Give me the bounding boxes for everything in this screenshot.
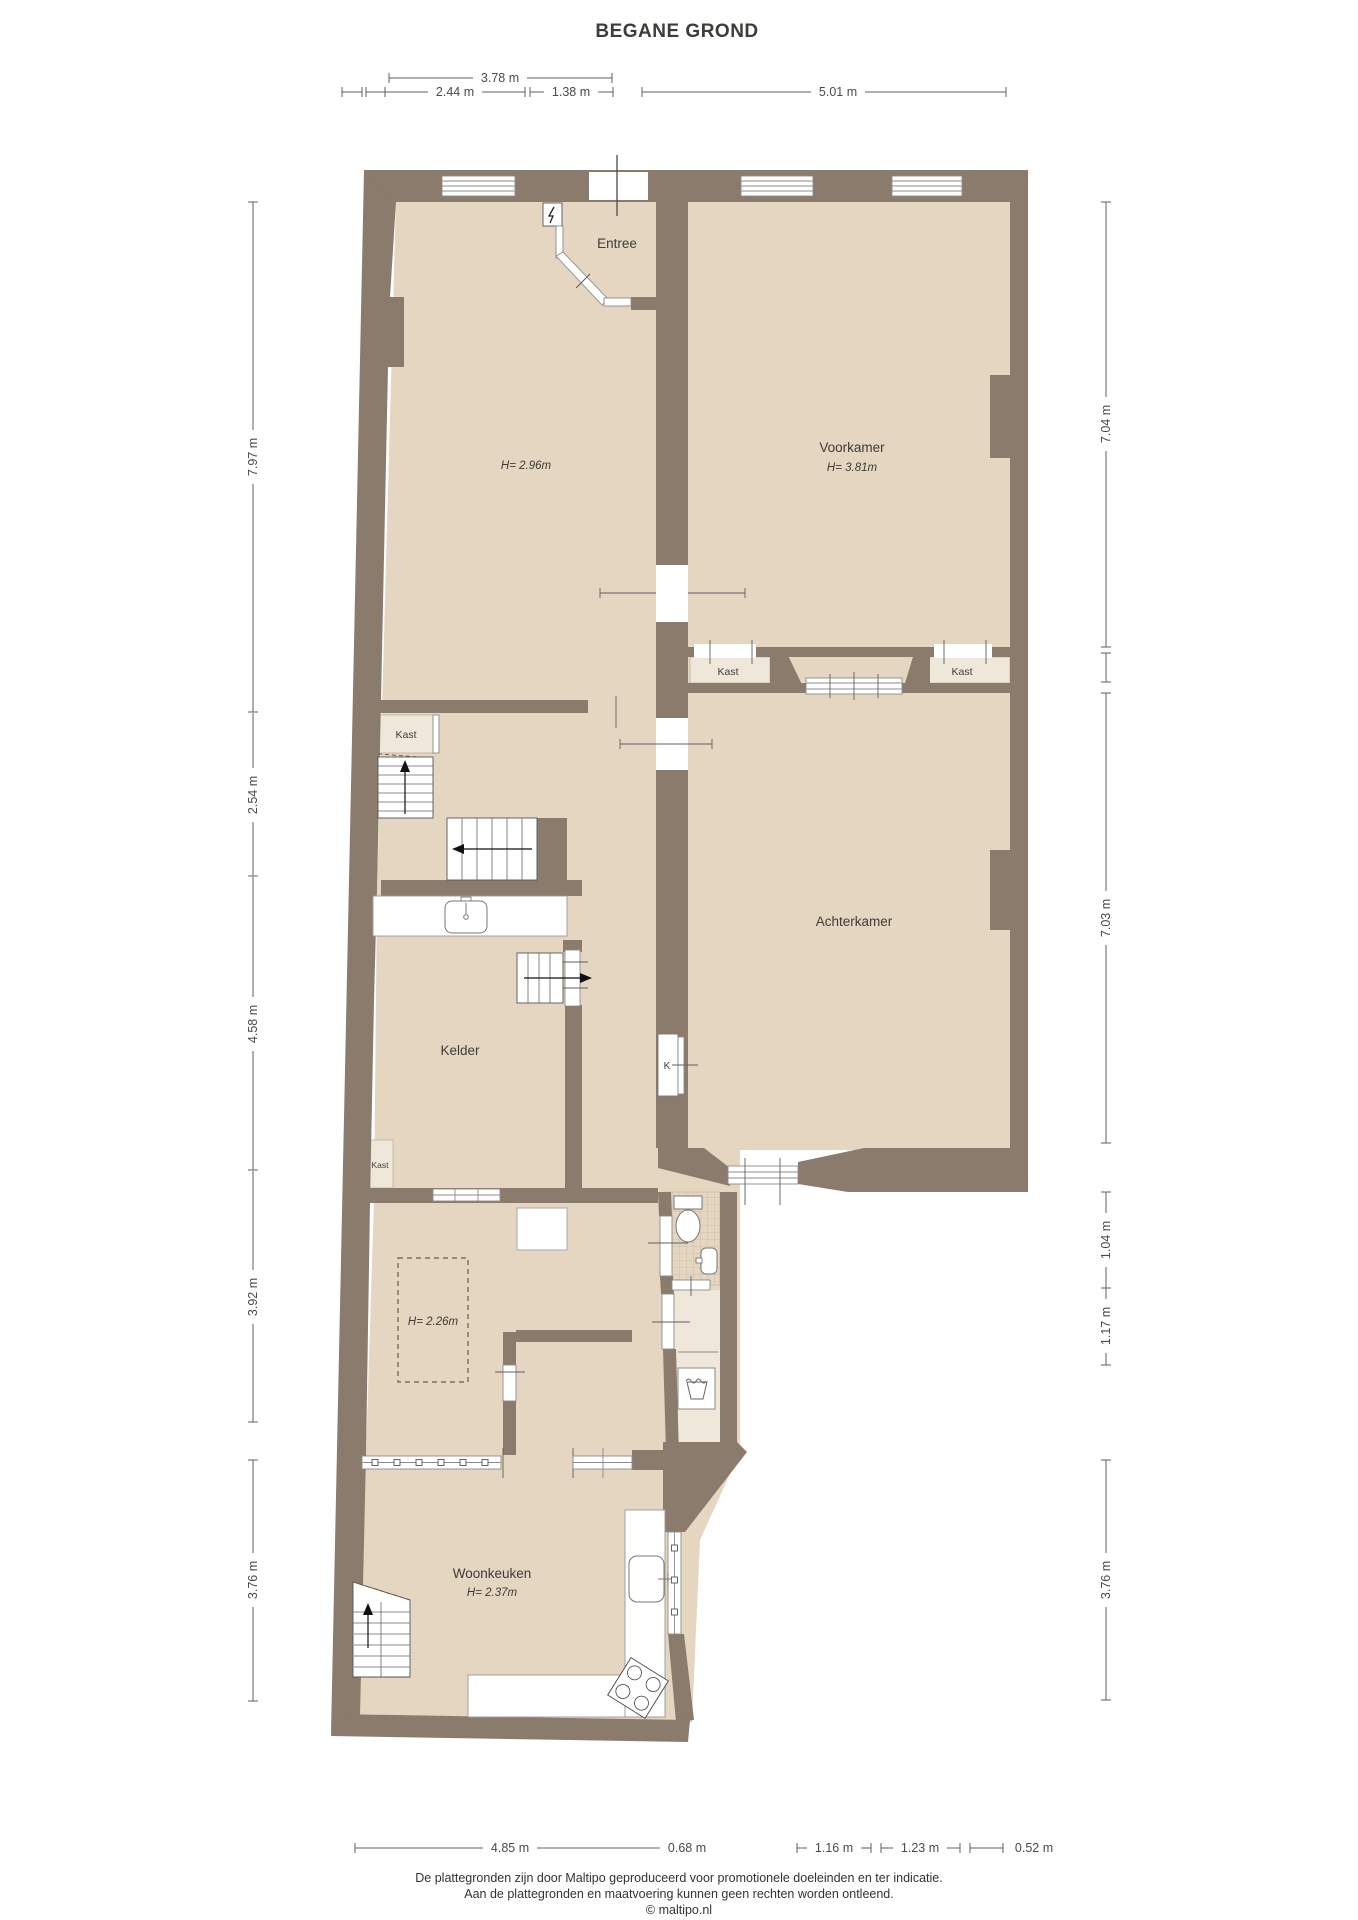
label-kast-row-left: Kast <box>717 666 738 678</box>
window-shaft-upper <box>660 1216 672 1276</box>
dim-top-501: 5.01 m <box>819 85 857 99</box>
dim-right-104: 1.04 m <box>1099 1221 1113 1259</box>
dim-bottom-068: 0.68 m <box>668 1841 706 1855</box>
wall-stair-block <box>537 818 567 880</box>
front-door-opening <box>589 172 648 200</box>
wall-shaft-left-a <box>658 1192 672 1216</box>
floorplan-page: BEGANE GROND 3.78 m 2.44 m 1.38 m 5.01 m… <box>0 0 1358 1920</box>
dim-bottom-123: 1.23 m <box>901 1841 939 1855</box>
label-kast-kelder: Kast <box>371 1160 389 1170</box>
dim-bottom-116: 1.16 m <box>815 1841 853 1855</box>
footer-line-2: Aan de plattegronden en maatvoering kunn… <box>464 1887 894 1901</box>
fusebox <box>543 203 562 226</box>
kast-left-door <box>694 644 756 658</box>
k-box-door <box>678 1037 684 1094</box>
dim-top-138: 1.38 m <box>552 85 590 99</box>
dim-top-244: 2.44 m <box>436 85 474 99</box>
label-k-box: K <box>664 1061 671 1072</box>
label-voorkamer-height: H= 3.81m <box>827 462 878 474</box>
label-achterkamer: Achterkamer <box>816 914 893 929</box>
wall-hall-band <box>381 880 582 896</box>
wall-niche-voorkamer <box>990 375 1010 458</box>
toilet-sink <box>701 1248 717 1274</box>
wall-middle <box>656 202 688 1148</box>
label-entree: Entree <box>597 236 637 251</box>
dim-right-376: 3.76 m <box>1099 1561 1113 1599</box>
dim-bottom-052: 0.52 m <box>1015 1841 1053 1855</box>
kast-right-door <box>934 644 992 658</box>
wall-right <box>1010 170 1028 1192</box>
page-title: BEGANE GROND <box>595 21 758 42</box>
dim-top-378: 3.78 m <box>481 71 519 85</box>
footer-line-3: © maltipo.nl <box>646 1903 712 1917</box>
dim-right-703: 7.03 m <box>1099 899 1113 937</box>
dim-bottom-485: 4.85 m <box>491 1841 529 1855</box>
dim-left-376: 3.76 m <box>246 1561 260 1599</box>
wall-kelder-bottom <box>367 1188 658 1203</box>
wall-shaft-right <box>720 1192 737 1444</box>
floorplan-canvas: BEGANE GROND 3.78 m 2.44 m 1.38 m 5.01 m… <box>0 0 1358 1920</box>
toilet-bowl <box>676 1210 700 1242</box>
wall-achterkamer-bottom-right <box>798 1148 1028 1192</box>
hall-window-thin <box>433 715 439 753</box>
wall-kitchen-top-piece <box>632 1450 666 1470</box>
toilet-sink-tap <box>696 1258 702 1263</box>
label-woonkeuken-height: H= 2.37m <box>467 1587 518 1599</box>
wall-entree-stub <box>631 297 656 310</box>
toilet-tank <box>674 1196 702 1209</box>
washing-machine <box>678 1368 715 1409</box>
wall-kelder-right <box>565 1005 582 1190</box>
footer-line-1: De plattegronden zijn door Maltipo gepro… <box>415 1871 942 1885</box>
dim-left-254: 2.54 m <box>246 776 260 814</box>
label-middleroom-height: H= 2.26m <box>408 1316 459 1328</box>
dim-left-797: 7.97 m <box>246 438 260 476</box>
dim-left-458: 4.58 m <box>246 1005 260 1043</box>
window-shaft-lower <box>662 1294 674 1349</box>
dim-right-117: 1.17 m <box>1099 1307 1113 1345</box>
wall-bigroom-bottom <box>377 700 588 713</box>
window-achterkamer-bottom <box>728 1166 798 1184</box>
label-voorkamer: Voorkamer <box>819 440 885 455</box>
dim-left-392: 3.92 m <box>246 1278 260 1316</box>
wall-lobby-horizontal <box>516 1330 632 1342</box>
entree-window-horizontal <box>604 298 631 306</box>
label-woonkeuken: Woonkeuken <box>453 1566 532 1581</box>
label-kast-hall: Kast <box>395 729 416 741</box>
appliance-box <box>517 1208 567 1250</box>
label-kast-row-right: Kast <box>951 666 972 678</box>
lobby-door <box>503 1365 516 1401</box>
label-leftroom-height: H= 2.96m <box>501 460 552 472</box>
dim-right-704: 7.04 m <box>1099 405 1113 443</box>
door-bigroom-voorkamer <box>656 565 688 622</box>
wall-niche-achterkamer <box>990 850 1010 930</box>
label-kelder: Kelder <box>440 1043 480 1058</box>
